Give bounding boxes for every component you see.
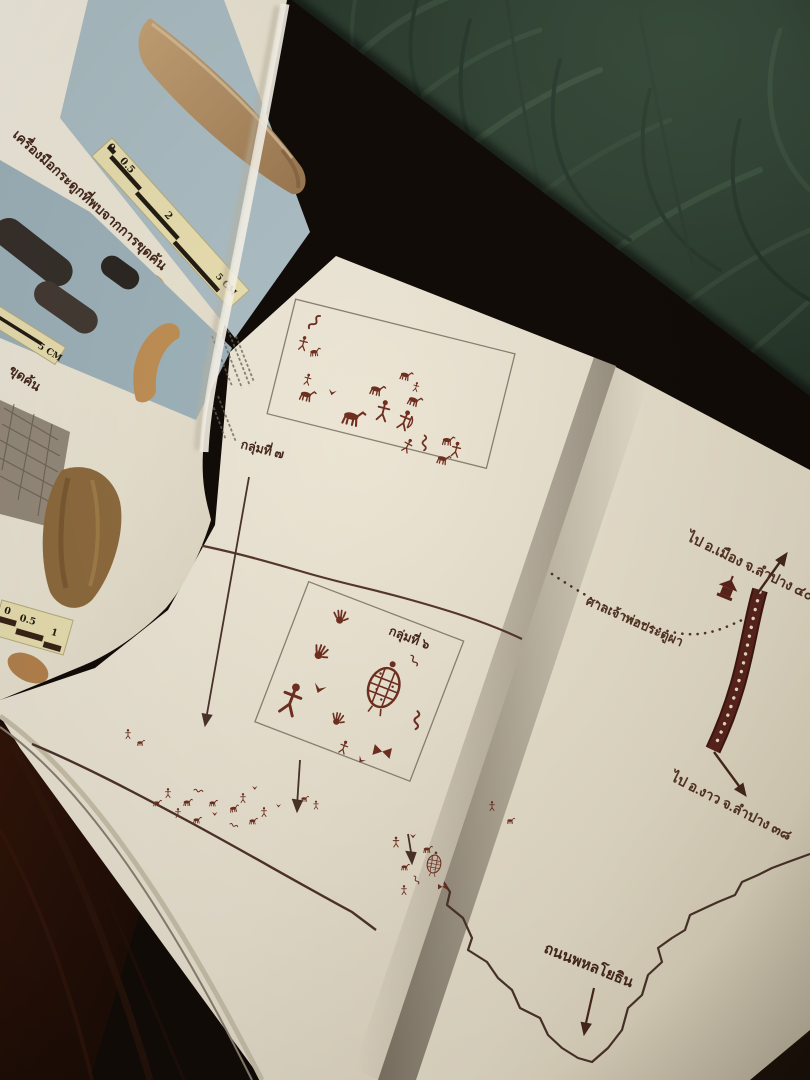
vignette (0, 0, 810, 1080)
photo-open-archaeology-book: ไป อ.เมือง จ.ลำปาง ๔๐ ศาลเจ้าพ่อประตูผา … (0, 0, 810, 1080)
